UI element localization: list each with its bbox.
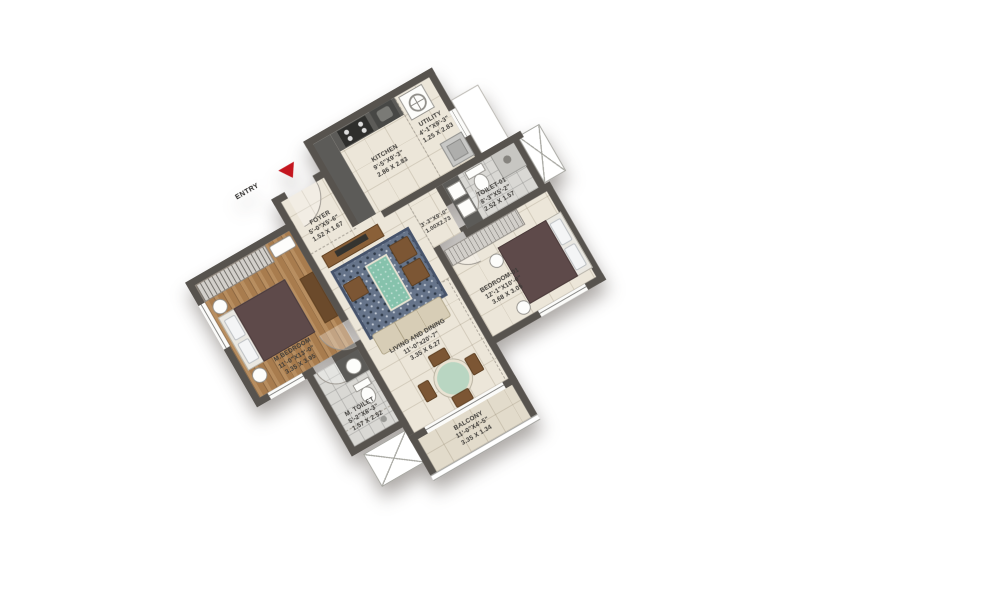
entry-label: ENTRY bbox=[234, 181, 261, 201]
floor-plan-canvas: ENTRY FOYER 5'-0"X5'-6" 1.52 X 1.67 KITC… bbox=[0, 0, 1000, 600]
floor-plan: ENTRY FOYER 5'-0"X5'-6" 1.52 X 1.67 KITC… bbox=[154, 30, 677, 540]
sink-basin bbox=[446, 138, 469, 161]
entry-arrow-icon bbox=[278, 162, 300, 183]
washer-drum bbox=[405, 90, 430, 115]
shower-head-icon bbox=[502, 154, 513, 165]
sink-basin bbox=[376, 105, 394, 122]
